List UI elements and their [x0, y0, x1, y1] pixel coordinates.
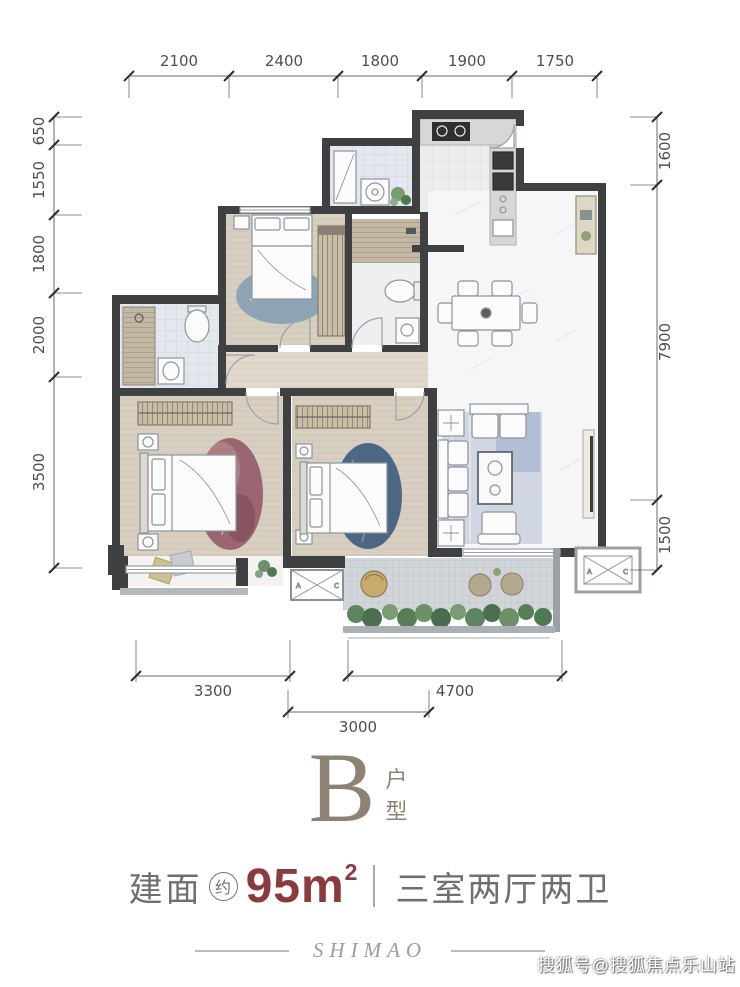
toilet-icon [385, 280, 415, 302]
bedroom2-bed [250, 213, 314, 299]
bedroom2-nightstand [234, 216, 249, 229]
hall-cabinet [576, 196, 596, 254]
divider [373, 865, 375, 907]
svg-text:C: C [623, 568, 628, 576]
bedroom3-bed [300, 462, 387, 534]
dim-label: 1900 [448, 52, 486, 70]
cooktop-icon [432, 122, 470, 141]
dining-chair [522, 303, 537, 323]
svg-text:A: A [587, 568, 592, 576]
pouf [469, 574, 491, 596]
shower [123, 307, 155, 385]
floorplan-page: A C A C [0, 0, 740, 987]
dim-label: 3500 [30, 453, 48, 491]
floorplan-drawing: A C A C [0, 0, 740, 740]
area-value: 95m [246, 859, 345, 914]
area-summary: 建面 约 95m 2 三室两厅两卫 [0, 850, 740, 922]
dim-label: 2100 [160, 52, 198, 70]
dim-label: 1550 [30, 161, 48, 199]
svg-text:C: C [334, 582, 339, 590]
master-bed [140, 453, 236, 533]
bathroom2-shower-floor [352, 219, 420, 263]
layout-description: 三室两厅两卫 [395, 862, 611, 911]
dining-chair [458, 331, 478, 346]
watermark: 搜狐号@搜狐焦点乐山站 [538, 951, 736, 976]
faucet-icon [406, 228, 416, 234]
unit-suffix: 户型 [385, 764, 411, 828]
dim-label: 1500 [656, 516, 674, 554]
dining-chair [438, 303, 453, 323]
dim-label: 7900 [656, 323, 674, 361]
oven-icon [493, 152, 513, 169]
ac-platform: A C [291, 570, 343, 600]
approx-badge: 约 [209, 872, 238, 901]
dim-label: 3300 [194, 682, 232, 700]
area-label: 建面 [129, 862, 203, 911]
unit-letter: B [309, 748, 376, 828]
nightstand [138, 434, 158, 450]
balcony-rail [343, 626, 555, 633]
tv-panel [583, 430, 594, 518]
dim-label: 1800 [361, 52, 399, 70]
dim-label: 1750 [536, 52, 574, 70]
pouf [501, 573, 523, 595]
brand-line-left [195, 950, 289, 952]
unit-type-block: B 户型 [0, 748, 730, 828]
corridor-floor [226, 352, 428, 388]
dim-label: 1600 [656, 132, 674, 170]
plant-icon [493, 568, 501, 576]
dining-chair [492, 281, 512, 296]
dim-label: 4700 [436, 682, 474, 700]
toilet-icon [185, 310, 209, 342]
nightstand [296, 444, 312, 458]
dim-label: 2000 [30, 316, 48, 354]
master-wardrobe [138, 402, 232, 425]
window-sill [120, 588, 248, 595]
bedroom3-wardrobe [296, 406, 370, 428]
svg-text:A: A [296, 582, 301, 590]
area-exponent: 2 [345, 859, 358, 886]
dim-label: 650 [30, 117, 48, 146]
dining-chair [492, 331, 512, 346]
coffee-table [478, 452, 512, 504]
vanity-sink [396, 318, 419, 343]
dim-label: 1800 [30, 235, 48, 273]
sofa [438, 440, 468, 518]
dim-label: 2400 [265, 52, 303, 70]
bedroom2-wardrobe [318, 226, 345, 336]
brand-line-right [451, 950, 545, 952]
microwave-icon [493, 173, 513, 190]
armchair [478, 512, 520, 544]
brand-name: SHIMAO [313, 938, 427, 963]
dining-chair [458, 281, 478, 296]
